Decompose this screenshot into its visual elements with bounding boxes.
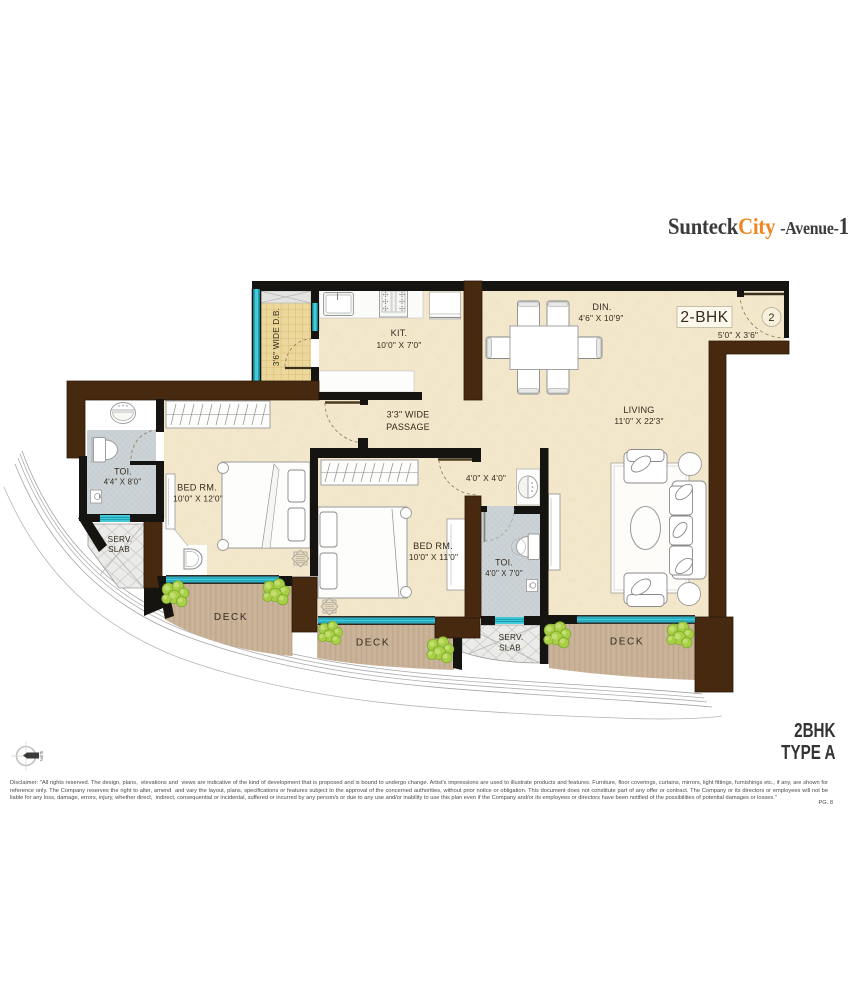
svg-text:BED RM.: BED RM. <box>413 541 453 551</box>
svg-text:4'6" X 10'9": 4'6" X 10'9" <box>578 313 623 323</box>
svg-text:BED RM.: BED RM. <box>177 483 217 493</box>
svg-text:SERV.: SERV. <box>108 535 133 544</box>
svg-text:4'0" X 4'0": 4'0" X 4'0" <box>466 473 506 483</box>
svg-text:DECK: DECK <box>356 638 390 649</box>
svg-text:PASSAGE: PASSAGE <box>386 422 430 432</box>
svg-text:SLAB: SLAB <box>499 644 521 653</box>
svg-text:LIVING: LIVING <box>623 405 654 415</box>
svg-text:10'0" X 11'0": 10'0" X 11'0" <box>409 552 458 562</box>
svg-text:11'0" X 22'3": 11'0" X 22'3" <box>614 416 663 426</box>
svg-text:SLAB: SLAB <box>108 545 130 554</box>
svg-text:KIT.: KIT. <box>391 328 408 338</box>
svg-text:10'0" X 12'0": 10'0" X 12'0" <box>173 494 223 504</box>
svg-text:TOI.: TOI. <box>114 467 132 477</box>
svg-text:5'0" X 3'6": 5'0" X 3'6" <box>718 330 758 340</box>
svg-text:DIN.: DIN. <box>592 302 611 312</box>
svg-text:DECK: DECK <box>214 612 248 623</box>
svg-text:3'6" WIDE D.B.: 3'6" WIDE D.B. <box>272 308 281 366</box>
svg-text:TOI.: TOI. <box>495 558 513 568</box>
svg-text:4'4" X 8'0": 4'4" X 8'0" <box>104 478 142 487</box>
svg-text:3'3" WIDE: 3'3" WIDE <box>387 410 430 420</box>
svg-text:2: 2 <box>768 312 774 324</box>
svg-text:10'0" X 7'0": 10'0" X 7'0" <box>376 340 421 350</box>
svg-text:DECK: DECK <box>610 637 644 648</box>
svg-text:4'0" X 7'0": 4'0" X 7'0" <box>485 569 523 578</box>
svg-text:North: North <box>39 750 44 761</box>
svg-text:SERV.: SERV. <box>499 633 524 642</box>
svg-text:2-BHK: 2-BHK <box>680 309 728 326</box>
